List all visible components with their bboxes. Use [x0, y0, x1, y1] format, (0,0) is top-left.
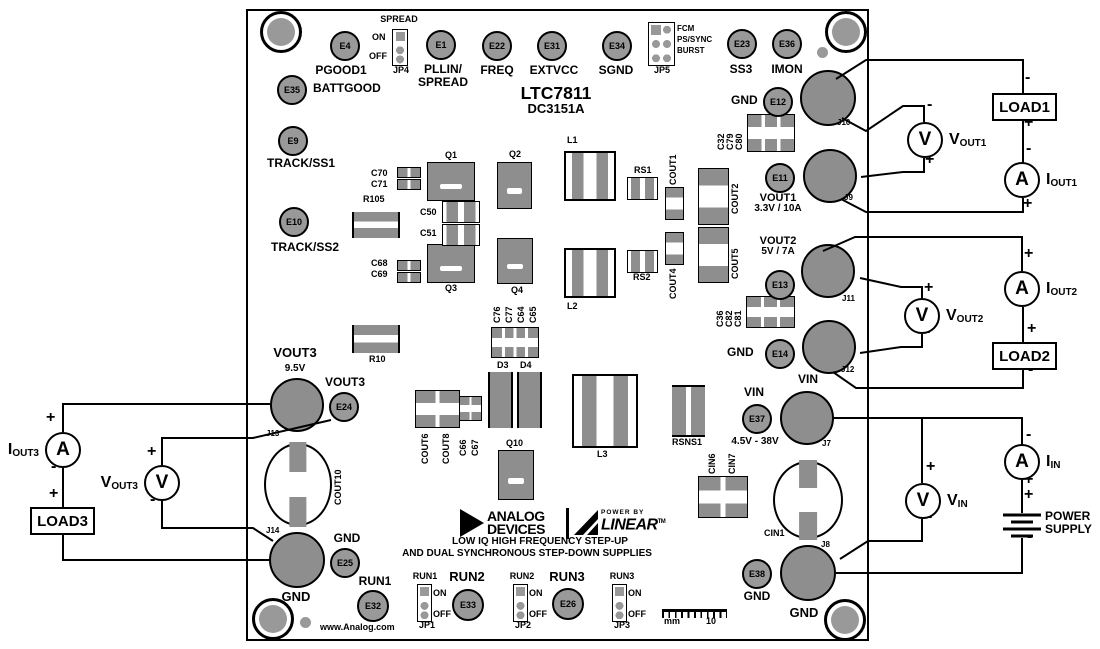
label-run3-small: RUN3: [610, 572, 635, 582]
label-jp4: JP4: [393, 66, 409, 76]
ammeter-iin: A IIN: [1004, 444, 1040, 480]
label-vout1-spec: 3.3V / 10A: [754, 204, 801, 215]
cap-group-cin6-cin7: [698, 476, 748, 518]
label-c68: C68: [371, 259, 388, 269]
res-rs1: [627, 177, 658, 200]
label-vin-j7: VIN: [798, 373, 818, 386]
label-l3: L3: [597, 450, 608, 460]
label-jp1: JP1: [419, 621, 435, 631]
turret-j13: [270, 378, 324, 432]
label-gnd-e14: GND: [727, 346, 754, 359]
label-cin1: CIN1: [764, 529, 785, 539]
logo-power-by-text: POWER BY: [601, 509, 665, 516]
label-power-supply: POWER SUPPLY: [1045, 510, 1092, 535]
label-run2-big: RUN2: [449, 570, 484, 584]
turret-j8: [780, 545, 836, 601]
meter-circle: A: [1004, 162, 1040, 198]
turret-j11: [801, 244, 855, 298]
sign-load1-minus: -: [1025, 70, 1030, 87]
label-q10: Q10: [506, 439, 523, 449]
label-jp3-on: ON: [628, 589, 642, 599]
sign-iout2-plus: +: [1024, 246, 1033, 263]
testpoint-e26: E26: [552, 588, 584, 620]
sign-load2-plus: +: [1027, 321, 1036, 338]
logo-divider: [566, 508, 569, 539]
label-c65: C65: [529, 306, 539, 323]
testpoint-e25: E25: [330, 548, 360, 578]
testpoint-e24: E24: [329, 392, 359, 422]
res-r105: [352, 212, 400, 238]
label-cout1: COUT1: [669, 154, 679, 185]
fet-q2: [497, 162, 532, 209]
label-ss3: SS3: [730, 63, 753, 76]
testpoint-e31: E31: [537, 31, 567, 61]
label-c77: C77: [505, 306, 515, 323]
jumper-jp5: [648, 22, 675, 66]
label-cout8: COUT8: [442, 433, 452, 464]
cap-c51: [442, 224, 480, 246]
meter-label: IOUT1: [1046, 171, 1077, 189]
logo-linear-text: LINEARTM: [601, 516, 665, 531]
label-q4: Q4: [511, 286, 523, 296]
label-gnd-e12: GND: [731, 94, 758, 107]
label-c76: C76: [493, 306, 503, 323]
label-r10: R10: [369, 355, 386, 365]
cap-cout2: [698, 168, 729, 225]
jumper-jp2: [513, 584, 528, 622]
fet-q3: [427, 244, 475, 283]
cap-c50: [442, 201, 480, 223]
label-ps-sync: PS/SYNC: [677, 36, 712, 44]
label-run1-big: RUN1: [359, 575, 392, 588]
meter-label: VIN: [947, 492, 968, 510]
label-c81: C81: [734, 310, 744, 327]
label-ruler-max: 10: [706, 617, 716, 627]
label-run2-small: RUN2: [510, 572, 535, 582]
meter-circle: V: [144, 465, 180, 501]
voltmeter-vout1: V VOUT1: [907, 122, 943, 158]
label-gnd-e38: GND: [744, 590, 771, 603]
sign-battery-minus: -: [1027, 529, 1032, 546]
jumper-jp4: [392, 29, 408, 66]
label-part-number: LTC7811: [521, 84, 592, 103]
label-battgood: BATTGOOD: [313, 82, 381, 95]
trademark-mark: TM: [658, 519, 666, 525]
fet-q10: [498, 450, 534, 500]
label-d3: D3: [497, 361, 509, 371]
meter-label: IOUT2: [1046, 280, 1077, 298]
cap-group-cout6-cout8: [415, 390, 460, 428]
res-rsns1: [672, 385, 705, 437]
label-track-ss2: TRACK/SS2: [271, 241, 339, 254]
label-vin-e37: VIN: [744, 386, 764, 399]
label-jp4-off: OFF: [369, 52, 387, 62]
sign-iout3-plus: +: [46, 410, 55, 427]
label-rs1: RS1: [634, 166, 652, 176]
testpoint-e1: E1: [426, 30, 456, 60]
analog-devices-logo: ANALOG DEVICES: [460, 509, 545, 537]
testpoint-e9: E9: [278, 126, 308, 156]
voltmeter-vout3: V VOUT3: [144, 465, 180, 501]
label-q2: Q2: [509, 150, 521, 160]
meter-label: VOUT1: [949, 131, 986, 149]
label-j13: J13: [266, 430, 279, 438]
label-c67: C67: [471, 439, 481, 456]
wire-vout1-meter-pos: [861, 158, 924, 177]
res-rs2: [627, 250, 658, 273]
sign-vmeter1-minus: -: [927, 97, 932, 114]
meter-circle: V: [904, 298, 940, 334]
label-j11: J11: [842, 295, 855, 303]
testpoint-e35: E35: [277, 75, 307, 105]
meter-circle: A: [1004, 444, 1040, 480]
label-jp1-on: ON: [433, 589, 447, 599]
label-j7: J7: [822, 440, 831, 448]
meter-label: VOUT2: [946, 307, 983, 325]
turret-j14: [269, 532, 325, 588]
label-sgnd: SGND: [599, 64, 634, 77]
fiducial-dot-top-right: [817, 47, 828, 58]
testpoint-e36: E36: [772, 29, 802, 59]
label-cout6: COUT6: [421, 433, 431, 464]
label-ruler-unit: mm: [664, 617, 680, 627]
testpoint-e32: E32: [357, 590, 389, 622]
label-imon: IMON: [771, 63, 802, 76]
sign-iout1-plus: +: [1023, 196, 1032, 213]
sign-battery-plus: +: [1024, 487, 1033, 504]
label-jp2-on: ON: [529, 589, 543, 599]
fet-q4: [497, 238, 533, 284]
label-vout3-big: VOUT3: [273, 346, 316, 360]
label-q1: Q1: [445, 151, 457, 161]
label-j12: J12: [841, 366, 854, 374]
cap-group-c66-c67: [459, 396, 482, 421]
meter-label: IIN: [1046, 453, 1060, 471]
turret-j7: [780, 391, 834, 445]
label-vout3-e24: VOUT3: [325, 376, 365, 389]
label-j8: J8: [821, 541, 830, 549]
label-vout2-spec: 5V / 7A: [761, 247, 794, 258]
wire-vout2-meter-pos: [860, 278, 922, 298]
label-rsns1: RSNS1: [672, 438, 702, 448]
label-cout2: COUT2: [731, 183, 741, 214]
label-cout5: COUT5: [731, 248, 741, 279]
cap-group-c36-c82-c81: [746, 296, 795, 328]
label-cin7: CIN7: [728, 453, 738, 474]
testpoint-e11: E11: [765, 163, 795, 193]
label-gnd-j8: GND: [790, 606, 819, 620]
voltmeter-vout2: V VOUT2: [904, 298, 940, 334]
mounting-hole-top-right: [825, 11, 867, 53]
label-burst: BURST: [677, 47, 705, 55]
label-cin6: CIN6: [708, 453, 718, 474]
demo-board-connection-diagram: E4E35E9E10E1E22E31E34E23E36E12E11E13E14E…: [0, 0, 1100, 649]
voltmeter-vin: V VIN: [905, 483, 941, 519]
sign-load3-plus: +: [49, 486, 58, 503]
ammeter-iout3: A IOUT3: [45, 432, 81, 468]
res-r10: [352, 325, 400, 353]
meter-circle: A: [1004, 271, 1040, 307]
jumper-jp3: [612, 584, 627, 622]
label-track-ss1: TRACK/SS1: [267, 157, 335, 170]
analog-devices-wordmark: ANALOG DEVICES: [487, 510, 545, 536]
testpoint-e12: E12: [763, 87, 793, 117]
label-j10: J10: [837, 119, 850, 127]
meter-label: IOUT3: [8, 441, 39, 459]
ind-l2: [564, 248, 616, 298]
analog-devices-triangle-icon: [460, 509, 484, 537]
load1-box: LOAD1: [992, 93, 1057, 121]
testpoint-e34: E34: [602, 31, 632, 61]
testpoint-e38: E38: [742, 559, 772, 589]
sign-iin-minus: -: [1026, 427, 1031, 444]
testpoint-e37: E37: [742, 404, 772, 434]
wire-load3-j14: [63, 535, 269, 560]
label-run3-big: RUN3: [549, 570, 584, 584]
load3-box: LOAD3: [30, 507, 95, 535]
meter-circle: V: [907, 122, 943, 158]
cap-c68: [397, 260, 421, 271]
ammeter-iout1: A IOUT1: [1004, 162, 1040, 198]
power-by-linear-logo: POWER BY LINEARTM: [573, 509, 665, 537]
sign-vmeter2-plus: +: [924, 280, 933, 297]
label-rs2: RS2: [633, 273, 651, 283]
sign-vmeter3-plus: +: [147, 444, 156, 461]
fiducial-dot-bottom-left: [300, 617, 311, 628]
label-j14: J14: [266, 527, 279, 535]
label-vout3-voltage: 9.5V: [285, 364, 306, 375]
label-c71: C71: [371, 180, 388, 190]
label-q3: Q3: [445, 284, 457, 294]
cap-c70: [397, 167, 421, 178]
label-pgood1: PGOOD1: [315, 64, 366, 77]
testpoint-e4: E4: [330, 31, 360, 61]
label-jp1-off: OFF: [433, 610, 451, 620]
meter-circle: A: [45, 432, 81, 468]
cap-c69: [397, 272, 421, 283]
mounting-hole-bottom-left: [252, 598, 294, 640]
sign-vin-plus: +: [926, 459, 935, 476]
label-board-id: DC3151A: [527, 102, 584, 116]
label-title-line2: AND DUAL SYNCHRONOUS STEP-DOWN SUPPLIES: [402, 549, 652, 560]
wire-j13-iout3: [63, 404, 270, 432]
label-r105: R105: [363, 195, 385, 205]
label-gnd-e25: GND: [334, 532, 361, 545]
mounting-hole-bottom-right: [824, 599, 866, 641]
label-freq: FREQ: [480, 64, 513, 77]
testpoint-e22: E22: [482, 31, 512, 61]
label-run1-small: RUN1: [413, 572, 438, 582]
label-fcm: FCM: [677, 25, 694, 33]
load2-box: LOAD2: [992, 342, 1057, 370]
cap-c71: [397, 179, 421, 190]
diode-d3: [488, 372, 513, 428]
sign-iout1-minus: -: [1026, 141, 1031, 158]
testpoint-e10: E10: [279, 207, 309, 237]
wire-vout2-meter-neg: [860, 334, 922, 353]
testpoint-e33: E33: [452, 589, 484, 621]
ind-l3: [572, 374, 638, 448]
cap-cout5: [698, 227, 729, 283]
label-vin-range: 4.5V - 38V: [731, 437, 778, 448]
testpoint-e13: E13: [765, 270, 795, 300]
label-jp2: JP2: [515, 621, 531, 631]
label-cout10: COUT10: [334, 469, 344, 505]
label-cout4: COUT4: [669, 268, 679, 299]
logo-word-devices: DEVICES: [487, 523, 545, 536]
mm-ruler: [662, 609, 727, 618]
label-j9: J9: [844, 194, 853, 202]
label-jp2-off: OFF: [529, 610, 547, 620]
label-title-line1: LOW IQ HIGH FREQUENCY STEP-UP: [452, 537, 628, 548]
label-c51: C51: [420, 229, 437, 239]
cap-group-c76-c77-c64-c65: [491, 327, 539, 358]
cap-cout4: [665, 232, 684, 265]
mounting-hole-top-left: [260, 11, 302, 53]
label-c64: C64: [517, 306, 527, 323]
jumper-jp1: [417, 584, 432, 622]
cap-cout1: [665, 187, 684, 220]
linear-logo-icon: [573, 509, 599, 537]
label-l2: L2: [567, 302, 578, 312]
label-extvcc: EXTVCC: [530, 64, 579, 77]
label-l1: L1: [567, 136, 578, 146]
label-c50: C50: [420, 208, 437, 218]
ammeter-iout2: A IOUT2: [1004, 271, 1040, 307]
label-pllin-spread: PLLIN/ SPREAD: [418, 63, 468, 88]
cap-group-c32-c79-c80: [747, 114, 795, 152]
label-website: www.Analog.com: [320, 623, 395, 633]
label-spread: SPREAD: [380, 15, 418, 25]
linear-wordmark: POWER BY LINEARTM: [601, 509, 665, 531]
label-c80: C80: [735, 133, 745, 150]
label-c70: C70: [371, 169, 388, 179]
label-jp3-off: OFF: [628, 610, 646, 620]
label-jp5: JP5: [654, 66, 670, 76]
label-jp4-on: ON: [372, 33, 386, 43]
label-gnd-j14: GND: [282, 590, 311, 604]
label-c69: C69: [371, 270, 388, 280]
meter-label: VOUT3: [101, 474, 138, 492]
cap-cout10: [264, 443, 332, 526]
testpoint-e14: E14: [765, 339, 795, 369]
diode-d4: [517, 372, 542, 428]
ind-l1: [564, 151, 616, 201]
meter-circle: V: [905, 483, 941, 519]
label-d4: D4: [520, 361, 532, 371]
label-c66: C66: [459, 439, 469, 456]
fet-q1: [427, 162, 475, 201]
label-jp3: JP3: [614, 621, 630, 631]
testpoint-e23: E23: [727, 29, 757, 59]
